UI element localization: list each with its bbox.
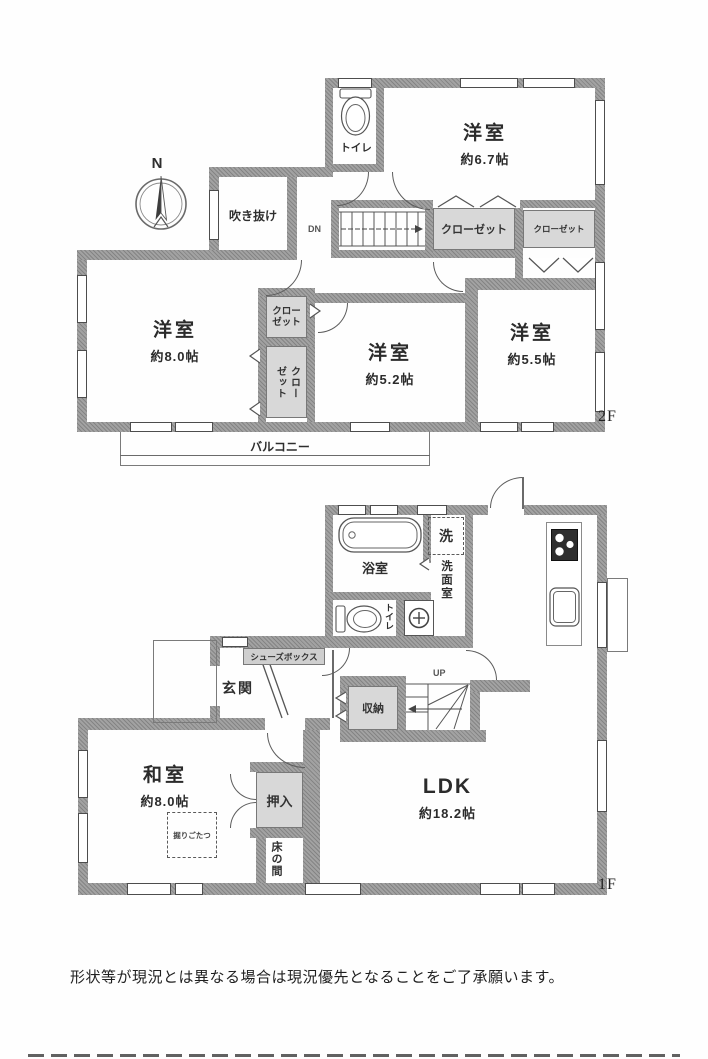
toilet-icon-2f [336, 88, 376, 138]
window [77, 350, 87, 398]
bifold-door-mark [527, 256, 561, 274]
wall [210, 636, 473, 648]
window [78, 813, 88, 863]
staircase-1f [406, 683, 470, 730]
shoe-box: シューズボックス [243, 648, 325, 665]
room-name: LDK [385, 775, 510, 799]
room-name: 洋室 [468, 318, 596, 345]
wall [376, 88, 384, 168]
closet-center-upper-2f: クローゼット [266, 296, 307, 338]
room-label-entrance: 玄関 [222, 678, 282, 698]
wall [209, 167, 333, 177]
floor2-label: 2F [598, 408, 617, 426]
stairs-up-label: UP [433, 668, 446, 678]
wall [315, 293, 465, 303]
door-leaf [522, 477, 524, 509]
storage-closet: 収納 [348, 686, 398, 730]
room-size: 約18.2帖 [385, 803, 510, 822]
room-name: 洋室 [110, 315, 240, 342]
window [77, 275, 87, 323]
wall [325, 164, 384, 172]
closet-door-mark [248, 400, 262, 418]
window [78, 750, 88, 798]
wall [597, 515, 607, 895]
window [222, 637, 248, 647]
wall [256, 838, 266, 883]
door-arc [230, 802, 256, 828]
closet-label: クローゼット [271, 306, 303, 328]
wall [470, 692, 480, 732]
bath-door-mark [418, 556, 431, 572]
shoe-box-label: シューズボックス [250, 651, 317, 663]
window [305, 883, 361, 895]
window [350, 422, 390, 432]
floor1-label: 1F [598, 876, 617, 894]
window [480, 883, 520, 895]
room-label-yoshitsu-5-2: 洋室 約5.2帖 [325, 338, 455, 388]
wall [340, 676, 406, 686]
porch-outline [153, 640, 217, 723]
room-label-tokonoma: 床の間 [268, 841, 284, 883]
wall [303, 730, 320, 883]
bathtub-icon [338, 517, 422, 553]
door-arc [318, 303, 348, 333]
wall [520, 200, 605, 208]
bay-window [607, 578, 628, 652]
window [127, 883, 171, 895]
bifold-door-mark [436, 194, 476, 208]
closet-door-mark [334, 708, 348, 724]
wall [287, 177, 297, 258]
door-arc [322, 648, 350, 676]
bifold-door-mark [478, 194, 518, 208]
room-size: 約5.2帖 [325, 369, 455, 388]
window [597, 582, 607, 648]
room-label-bath: 浴室 [345, 558, 405, 577]
window [338, 78, 372, 88]
window [522, 883, 555, 895]
door-arc [466, 650, 497, 680]
wall [77, 250, 297, 260]
room-label-balcony: バルコニー [232, 438, 328, 455]
disclaimer-text: 形状等が現況とは異なる場合は現況優先となることをご了承願います。 [70, 966, 670, 987]
room-label-yoshitsu-6-7: 洋室 約6.7帖 [420, 118, 550, 168]
wall [465, 515, 473, 648]
bifold-door-mark [561, 256, 595, 274]
wall [325, 592, 431, 600]
washbasin-icon [404, 600, 434, 636]
closet-label: クローゼット [533, 223, 584, 235]
room-label-void: 吹き抜け [219, 207, 287, 224]
stairs-down-label: DN [308, 224, 321, 234]
wall [470, 680, 530, 692]
floor-plan-document: N クローゼット クローゼット [0, 0, 708, 1059]
toilet-icon-1f [335, 602, 385, 636]
closet-door-mark [308, 302, 322, 320]
storage-label: 収納 [362, 700, 384, 716]
window [175, 422, 213, 432]
room-label-washitsu: 和室 約8.0帖 [100, 760, 230, 810]
door-arc [230, 774, 256, 800]
wall [331, 208, 339, 250]
window [595, 100, 605, 185]
balcony-inner-line [120, 455, 430, 456]
stove-icon [551, 529, 578, 561]
window [130, 422, 172, 432]
closet-door-mark [334, 690, 348, 706]
room-label-ldk: LDK 約18.2帖 [385, 775, 510, 822]
room-label-toilet-1f: トイレ [383, 603, 396, 635]
window [175, 883, 203, 895]
window [209, 190, 219, 240]
window [370, 505, 398, 515]
wall [325, 88, 333, 172]
wall [258, 338, 315, 346]
wall [340, 730, 486, 742]
room-size: 約5.5帖 [468, 349, 596, 368]
closet-label: クローゼット [273, 363, 301, 401]
room-label-laundry: 洗 [430, 526, 462, 546]
door-arc [433, 262, 463, 292]
oshiire-closet: 押入 [256, 772, 303, 828]
room-name: 和室 [100, 760, 230, 787]
room-size: 約8.0帖 [100, 791, 230, 810]
window [460, 78, 518, 88]
wall [524, 505, 607, 515]
closet-label: クローゼット [441, 221, 507, 237]
room-name: 洋室 [325, 338, 455, 365]
wall [250, 828, 303, 838]
room-size: 約6.7帖 [420, 149, 550, 168]
room-size: 約8.0帖 [110, 346, 240, 365]
wall [398, 680, 406, 732]
wall [305, 718, 330, 730]
wall [325, 515, 333, 648]
room-name: 洋室 [420, 118, 550, 145]
window [523, 78, 575, 88]
compass-icon [132, 174, 192, 238]
window [595, 262, 605, 330]
window [417, 505, 447, 515]
closet-small-2f: クローゼット [523, 210, 595, 248]
wall [396, 600, 404, 636]
closet-wide-2f: クローゼット [433, 208, 515, 250]
window [595, 352, 605, 412]
window [521, 422, 554, 432]
window [338, 505, 366, 515]
kitchen-sink-icon [549, 587, 580, 627]
door-arc [490, 477, 523, 508]
staircase-2f [339, 208, 425, 250]
window [480, 422, 518, 432]
room-label-yoshitsu-5-5: 洋室 約5.5帖 [468, 318, 596, 368]
closet-center-lower-2f: クローゼット [266, 346, 307, 418]
room-label-washroom: 洗面室 [438, 560, 454, 618]
scan-artifact-line [28, 1054, 680, 1057]
oshiire-label: 押入 [266, 791, 292, 810]
compass-north-label: N [145, 155, 169, 172]
kotatsu-label: 掘りごたつ [169, 830, 215, 841]
room-label-yoshitsu-8-0: 洋室 約8.0帖 [110, 315, 240, 365]
wall [465, 278, 605, 290]
closet-door-mark [248, 347, 262, 365]
room-label-toilet-2f: トイレ [336, 140, 376, 155]
window [597, 740, 607, 812]
